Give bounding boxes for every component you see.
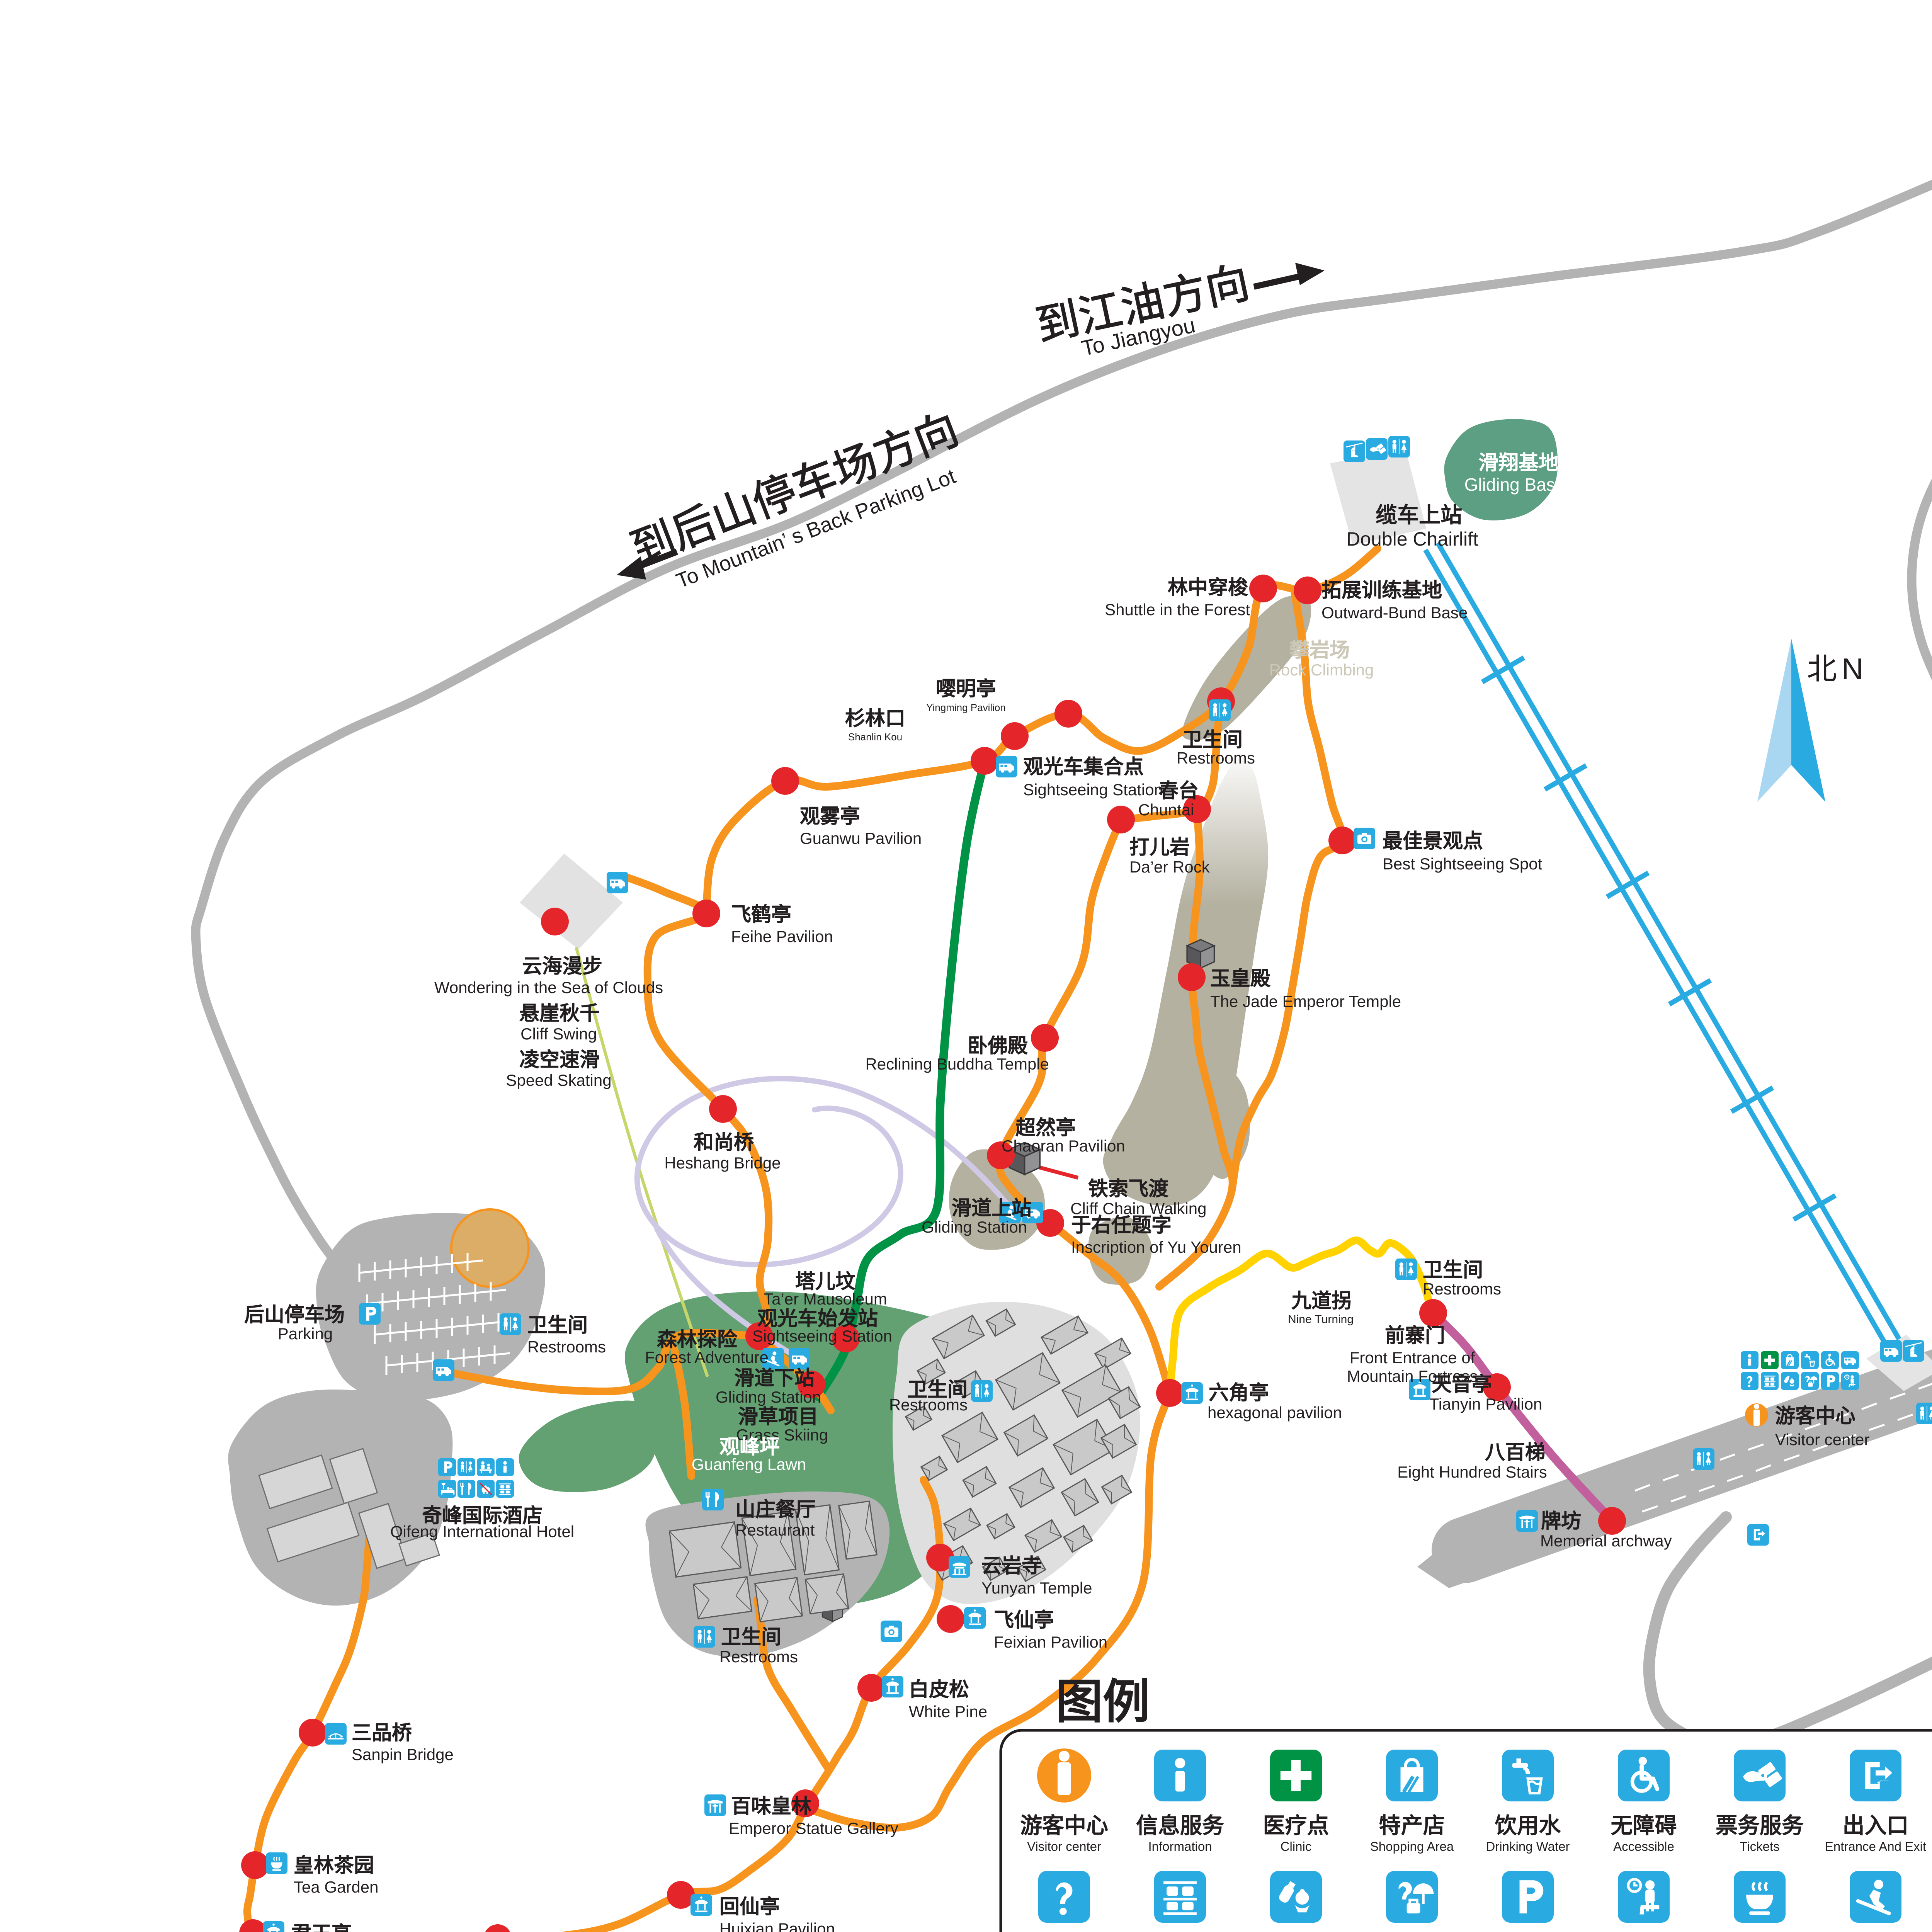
svg-text:Cliff Swing: Cliff Swing [520, 1025, 597, 1043]
svg-text:Shopping Area: Shopping Area [1370, 1839, 1454, 1854]
svg-text:Guanwu Pavilion: Guanwu Pavilion [800, 829, 922, 847]
svg-text:Restrooms: Restrooms [1423, 1280, 1501, 1298]
svg-text:Accessible: Accessible [1613, 1839, 1674, 1854]
svg-text:Clinic: Clinic [1281, 1839, 1312, 1854]
svg-text:N: N [1842, 652, 1863, 686]
svg-text:Information: Information [1148, 1839, 1212, 1854]
svg-text:Gliding Station: Gliding Station [716, 1388, 821, 1406]
svg-text:Entrance And Exit: Entrance And Exit [1825, 1839, 1926, 1854]
svg-text:Best Sightseeing Spot: Best Sightseeing Spot [1383, 855, 1543, 873]
svg-text:Huixian Pavilion: Huixian Pavilion [719, 1920, 835, 1932]
svg-text:Front Entrance of: Front Entrance of [1350, 1349, 1475, 1367]
svg-text:Eight Hundred Stairs: Eight Hundred Stairs [1397, 1463, 1547, 1481]
svg-text:Gliding Base: Gliding Base [1464, 474, 1565, 495]
svg-text:Feihe Pavilion: Feihe Pavilion [731, 927, 833, 946]
svg-text:Rock Climbing: Rock Climbing [1269, 661, 1374, 679]
svg-text:Ta’er Mausoleum: Ta’er Mausoleum [764, 1290, 887, 1308]
svg-text:Memorial archway: Memorial archway [1540, 1532, 1672, 1550]
svg-text:Shuttle in the Forest: Shuttle in the Forest [1105, 600, 1250, 619]
svg-text:Emperor Statue Gallery: Emperor Statue Gallery [729, 1819, 898, 1837]
svg-text:Sightseeing Station: Sightseeing Station [1023, 781, 1163, 799]
svg-text:Restrooms: Restrooms [889, 1396, 968, 1414]
svg-text:Nine Turning: Nine Turning [1288, 1313, 1354, 1326]
svg-text:Restrooms: Restrooms [1177, 749, 1255, 767]
svg-text:Guanfeng Lawn: Guanfeng Lawn [692, 1455, 806, 1473]
svg-text:Restrooms: Restrooms [719, 1648, 798, 1666]
svg-text:Outward-Bund Base: Outward-Bund Base [1321, 604, 1468, 622]
svg-text:hexagonal pavilion: hexagonal pavilion [1207, 1403, 1342, 1422]
svg-text:Tickets: Tickets [1740, 1839, 1779, 1854]
svg-text:White Pine: White Pine [909, 1702, 987, 1721]
svg-text:Visitor center: Visitor center [1027, 1839, 1101, 1854]
svg-text:Chaoran Pavilion: Chaoran Pavilion [1002, 1137, 1125, 1155]
svg-text:Sanpin Bridge: Sanpin Bridge [352, 1745, 454, 1764]
svg-text:Speed Skating: Speed Skating [506, 1071, 611, 1089]
svg-text:Gliding Station: Gliding Station [922, 1218, 1027, 1236]
svg-text:Heshang Bridge: Heshang Bridge [664, 1154, 781, 1172]
svg-text:Shanlin Kou: Shanlin Kou [848, 731, 902, 743]
svg-text:Forest Adventure: Forest Adventure [645, 1348, 769, 1366]
svg-text:Yunyan Temple: Yunyan Temple [981, 1579, 1092, 1597]
svg-text:Restaurant: Restaurant [735, 1521, 815, 1539]
svg-text:Wondering in the Sea of Clouds: Wondering in the Sea of Clouds [434, 978, 663, 997]
svg-text:Cliff Chain Walking: Cliff Chain Walking [1070, 1199, 1206, 1218]
svg-text:Chuntai: Chuntai [1138, 801, 1194, 819]
svg-text:Da’er Rock: Da’er Rock [1129, 858, 1210, 876]
svg-text:The Jade Emperor Temple: The Jade Emperor Temple [1210, 992, 1401, 1010]
svg-text:Restrooms: Restrooms [527, 1338, 606, 1356]
svg-text:Tea Garden: Tea Garden [294, 1878, 378, 1896]
svg-text:Parking: Parking [278, 1325, 333, 1343]
svg-text:Inscription of Yu Youren: Inscription of Yu Youren [1071, 1238, 1242, 1256]
svg-text:Tianyin Pavilion: Tianyin Pavilion [1429, 1395, 1543, 1413]
svg-text:Yingming Pavilion: Yingming Pavilion [926, 702, 1006, 713]
svg-text:Visitor center: Visitor center [1775, 1430, 1869, 1449]
svg-text:Drinking Water: Drinking Water [1486, 1839, 1570, 1854]
svg-text:Reclining Buddha Temple: Reclining Buddha Temple [865, 1055, 1049, 1073]
svg-text:Qifeng International Hotel: Qifeng International Hotel [390, 1522, 574, 1541]
svg-text:Double Chairlift: Double Chairlift [1346, 528, 1478, 550]
svg-text:Sightseeing Station: Sightseeing Station [752, 1327, 892, 1345]
svg-text:Feixian Pavilion: Feixian Pavilion [994, 1633, 1107, 1651]
